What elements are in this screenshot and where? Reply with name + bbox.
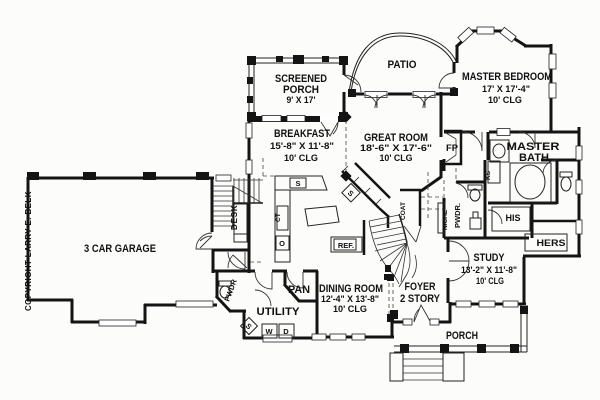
svg-text:DESK: DESK xyxy=(230,205,239,230)
svg-text:12'-4" X 13'-8": 12'-4" X 13'-8" xyxy=(321,294,379,304)
svg-text:15'-8" X 11'-8": 15'-8" X 11'-8" xyxy=(270,141,334,151)
svg-text:13'-2" X 11'-8": 13'-2" X 11'-8" xyxy=(461,265,517,275)
svg-text:10' CLG: 10' CLG xyxy=(284,153,318,163)
svg-text:10' CLG: 10' CLG xyxy=(476,276,504,286)
svg-text:S: S xyxy=(295,179,300,188)
svg-text:BREAKFAST: BREAKFAST xyxy=(274,128,330,140)
svg-text:10' CLG: 10' CLG xyxy=(333,304,367,314)
svg-text:10' CLG: 10' CLG xyxy=(380,153,413,163)
svg-text:COPYRIGHT LARRY E. BELK: COPYRIGHT LARRY E. BELK xyxy=(24,191,33,311)
svg-text:COAT: COAT xyxy=(400,202,407,220)
svg-text:HERS: HERS xyxy=(537,238,566,249)
svg-text:PORCH: PORCH xyxy=(446,330,478,342)
svg-text:FOYER: FOYER xyxy=(405,281,436,293)
svg-text:9' X 17': 9' X 17' xyxy=(287,95,316,105)
svg-text:W: W xyxy=(265,327,273,336)
svg-text:UTILITY: UTILITY xyxy=(257,306,301,318)
svg-text:PAN: PAN xyxy=(288,284,310,296)
svg-text:3 CAR GARAGE: 3 CAR GARAGE xyxy=(84,243,156,255)
svg-text:REF.: REF. xyxy=(338,241,354,250)
svg-text:KS: KS xyxy=(485,170,492,180)
svg-text:D: D xyxy=(283,327,289,336)
svg-text:HIS: HIS xyxy=(506,213,521,224)
svg-text:10' CLG: 10' CLG xyxy=(488,95,522,105)
svg-text:NICHE: NICHE xyxy=(442,209,449,230)
svg-text:PWDR.: PWDR. xyxy=(453,203,462,228)
svg-text:2 STORY: 2 STORY xyxy=(400,293,441,305)
svg-text:CT: CT xyxy=(275,213,282,222)
svg-text:18'-6" X 17'-6": 18'-6" X 17'-6" xyxy=(360,143,432,153)
svg-text:PATIO: PATIO xyxy=(388,59,417,71)
svg-text:FP: FP xyxy=(446,143,458,153)
svg-text:STUDY: STUDY xyxy=(474,252,506,264)
svg-text:17' X 17'-4": 17' X 17'-4" xyxy=(482,84,530,94)
svg-text:BATH: BATH xyxy=(519,152,549,164)
svg-text:MASTER BEDROOM: MASTER BEDROOM xyxy=(462,71,552,83)
svg-text:O: O xyxy=(279,239,285,248)
svg-text:S: S xyxy=(346,188,356,198)
